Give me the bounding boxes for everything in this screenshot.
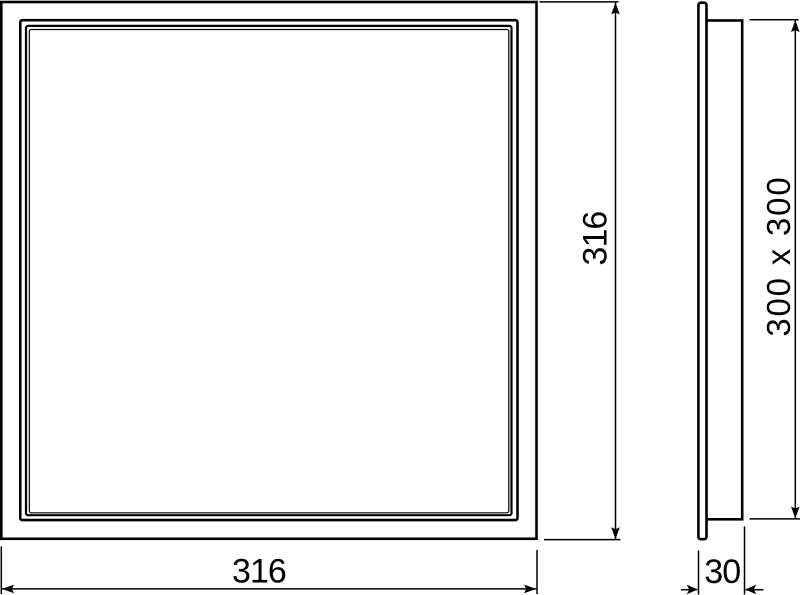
svg-text:30: 30 xyxy=(704,553,740,591)
svg-text:300 x 300: 300 x 300 xyxy=(760,176,797,337)
svg-text:316: 316 xyxy=(577,212,615,266)
svg-text:316: 316 xyxy=(232,553,286,591)
